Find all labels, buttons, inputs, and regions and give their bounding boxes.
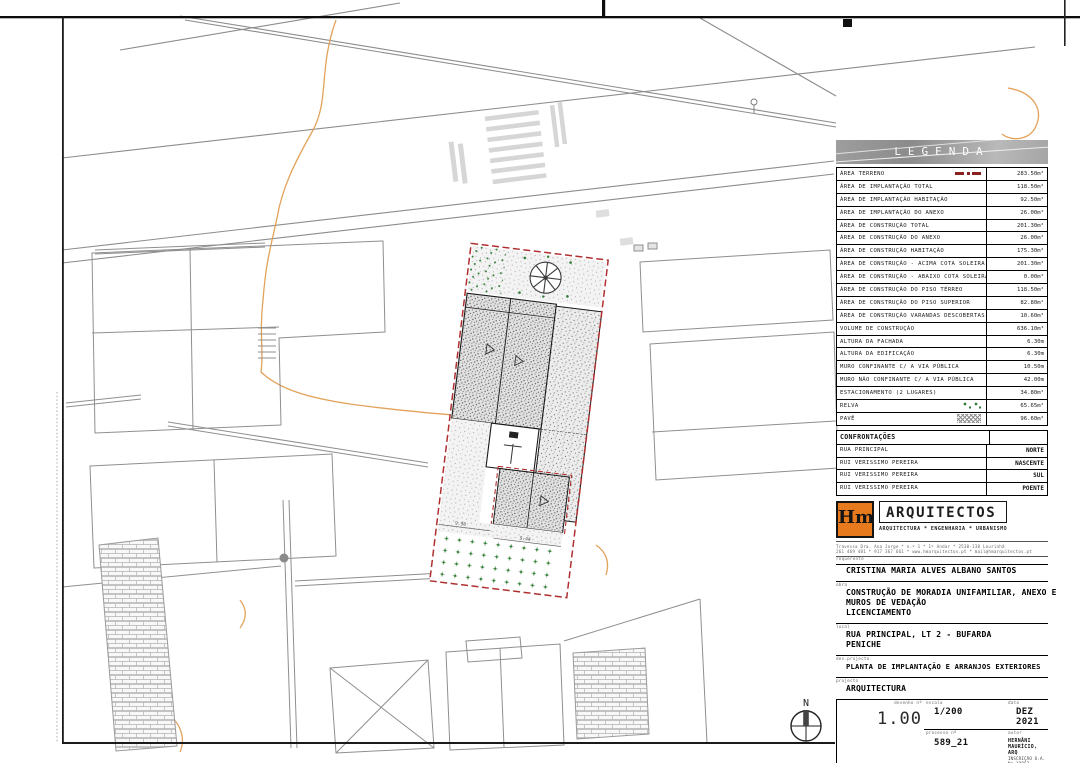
confrontacao-name: RUI VERISSIMO PEREIRA (837, 483, 986, 495)
confrontacao-row: RUI VERISSIMO PEREIRA SUL (837, 469, 1047, 482)
legend-row-labelcell: VOLUME DE CONSTRUÇÃO (837, 323, 986, 335)
legend-row-label: ALTURA DA FACHADA (840, 339, 903, 345)
requerente-value: CRISTINA MARIA ALVES ALBANO SANTOS (836, 566, 1048, 576)
desenho-numero-cell: desenho nº 1.00 (836, 699, 924, 763)
confrontacao-side: SUL (986, 470, 1047, 482)
legend-row-label: ÁREA DE CONSTRUÇÃO TOTAL (840, 223, 929, 229)
processo-label: processo nº (926, 731, 1004, 736)
data-value: DEZ 2021 (1008, 707, 1046, 727)
obra-line1: CONSTRUÇÃO DE MORADIA UNIFAMILIAR, ANEXO… (836, 588, 1048, 598)
legend-row: ÁREA DE CONSTRUÇÃO TOTAL 201.30m² (837, 219, 1047, 232)
local-section: local RUA PRINCIPAL, LT 2 - BUFARDA PENI… (836, 623, 1048, 653)
legend-row-labelcell: MURO CONFINANTE C/ A VIA PÚBLICA (837, 361, 986, 373)
legend-row-labelcell: ÁREA DE CONSTRUÇÃO - ABAIXO COTA SOLEIRA (837, 271, 986, 283)
legend-row-label: ÁREA DE IMPLANTAÇÃO DO ANEXO (840, 210, 944, 216)
legend-row: ÁREA DE CONSTRUÇÃO HABITAÇÃO 175.30m² (837, 244, 1047, 257)
legend-row-value: 0.00m² (986, 271, 1047, 283)
legend-row: MURO CONFINANTE C/ A VIA PÚBLICA 10.50m (837, 360, 1047, 373)
legend-row-value: 26.00m² (986, 207, 1047, 219)
legend-row-value: 118.50m² (986, 284, 1047, 296)
firm-logo-row: Hm ARQUITECTOS ARQUITECTURA * ENGENHARIA… (836, 501, 1048, 538)
titleblock-grid: escala 1/200 data DEZ 2021 desenho nº 1.… (836, 699, 1048, 763)
legend-row: ÁREA TERRENO 283.50m² (837, 168, 1047, 180)
processo-cell: processo nº 589_21 (924, 729, 1006, 763)
title-block-column: LEGENDA ÁREA TERRENO 283.50m² ÁREA DE IM… (836, 140, 1048, 763)
legend-row-labelcell: ÁREA DE IMPLANTAÇÃO TOTAL (837, 181, 986, 193)
north-label: N (803, 698, 809, 709)
legend-row: VOLUME DE CONSTRUÇÃO 636.10m³ (837, 322, 1047, 335)
firm-tagline: ARQUITECTURA * ENGENHARIA * URBANISMO (879, 526, 1007, 532)
legend-row: ÁREA DE IMPLANTAÇÃO TOTAL 118.50m² (837, 180, 1047, 193)
data-cell: data DEZ 2021 (1006, 699, 1048, 730)
legend-row-value: 92.50m² (986, 194, 1047, 206)
firm-block: Hm ARQUITECTOS ARQUITECTURA * ENGENHARIA… (836, 501, 1048, 562)
anexo-footprint (491, 466, 572, 535)
drawing-sheet: 9.98 9.44 N LEGENDA ÁREA TERRE (0, 0, 1080, 763)
legend-row-labelcell: ÁREA DE CONSTRUÇÃO HABITAÇÃO (837, 245, 986, 257)
requerente-section: CRISTINA MARIA ALVES ALBANO SANTOS (836, 564, 1048, 579)
autor-label: autor (1008, 731, 1046, 736)
legend-row: ESTACIONAMENTO (2 LUGARES) 34.80m² (837, 386, 1047, 399)
projecto-value: ARQUITECTURA (836, 684, 1048, 694)
firm-name-wrap: ARQUITECTOS ARQUITECTURA * ENGENHARIA * … (879, 501, 1007, 532)
legend-row-label: ÁREA DE CONSTRUÇÃO VARANDAS DESCOBERTAS (840, 313, 985, 319)
legend-row-value: 65.65m² (986, 400, 1047, 412)
legend-row: ÁREA DE CONSTRUÇÃO DO ANEXO 26.00m² (837, 231, 1047, 244)
legend-row-value: 26.00m² (986, 232, 1047, 244)
legend-row: RELVA 65.65m² (837, 399, 1047, 412)
confrontacao-name: RUI VERISSIMO PEREIRA (837, 470, 986, 482)
firm-name: ARQUITECTOS (879, 501, 1007, 523)
legend-row: ÁREA DE IMPLANTAÇÃO DO ANEXO 26.00m² (837, 206, 1047, 219)
processo-value: 589_21 (926, 738, 1004, 748)
legend-row-label: ÁREA DE CONSTRUÇÃO - ABAIXO COTA SOLEIRA (840, 274, 986, 280)
legend-row-label: ÁREA DE IMPLANTAÇÃO HABITAÇÃO (840, 197, 948, 203)
plot: 9.98 9.44 (430, 243, 608, 597)
legend-row-label: MURO NÃO CONFINANTE C/ A VIA PÚBLICA (840, 377, 974, 383)
local-line2: PENICHE (836, 640, 1048, 650)
confrontacoes-title: CONFRONTAÇÕES (837, 431, 989, 444)
legend-row-value: 96.60m² (986, 413, 1047, 425)
legend-row-label: ÁREA DE CONSTRUÇÃO DO PISO TÉRREO (840, 287, 963, 293)
escala-value: 1/200 (926, 707, 1004, 717)
stair-symbol (258, 328, 276, 358)
crosswalk (445, 102, 571, 189)
legend-row-labelcell: PAVÊ (837, 413, 986, 425)
confrontacao-row: RUI VERISSIMO PEREIRA POENTE (837, 482, 1047, 495)
firm-address: Travessa Dra. Ana Jorge * n.º 1 * 1º And… (836, 541, 1048, 557)
legend-row-label: ÁREA DE IMPLANTAÇÃO TOTAL (840, 184, 933, 190)
requerente-label: requerente (836, 557, 1048, 562)
confrontacao-side: POENTE (986, 483, 1047, 495)
escala-label: escala (926, 701, 1004, 706)
street-symbol (751, 99, 757, 113)
left-buildings (66, 241, 428, 568)
legend-table: ÁREA TERRENO 283.50m² ÁREA DE IMPLANTAÇÃ… (836, 167, 1048, 426)
legend-row-symbol (955, 172, 981, 175)
confrontacao-side: NASCENTE (986, 458, 1047, 470)
legend-row-value: 175.30m² (986, 245, 1047, 257)
confrontacao-side: NORTE (986, 445, 1047, 457)
legend-row-value: 118.50m² (986, 181, 1047, 193)
confrontacoes-table: CONFRONTAÇÕES RUA PRINCIPAL NORTE RUI VE… (836, 430, 1048, 496)
desenho-value: PLANTA DE IMPLANTAÇÃO E ARRANJOS EXTERIO… (836, 662, 1048, 672)
legend-row-labelcell: ÁREA DE IMPLANTAÇÃO HABITAÇÃO (837, 194, 986, 206)
legend-row-label: MURO CONFINANTE C/ A VIA PÚBLICA (840, 364, 959, 370)
legend-row-labelcell: RELVA (837, 400, 986, 412)
legend-row-value: 201.30m² (986, 220, 1047, 232)
legend-row-label: PAVÊ (840, 416, 855, 422)
pavement-marks (596, 209, 634, 246)
legend-row: ÁREA DE CONSTRUÇÃO - ABAIXO COTA SOLEIRA… (837, 270, 1047, 283)
confrontacoes-header: CONFRONTAÇÕES (837, 431, 1047, 445)
confrontacoes-rows: RUA PRINCIPAL NORTE RUI VERISSIMO PEREIR… (837, 445, 1047, 495)
obra-line3: LICENCIAMENTO (836, 608, 1048, 618)
firm-address-line2: 261 469 481 * 917 367 661 * www.hmarquit… (836, 549, 1048, 554)
legend-row-label: ÁREA DE CONSTRUÇÃO DO ANEXO (840, 235, 940, 241)
local-line1: RUA PRINCIPAL, LT 2 - BUFARDA (836, 630, 1048, 640)
legend-row-symbol (957, 414, 981, 423)
legend-row-labelcell: ALTURA DA FACHADA (837, 336, 986, 348)
autor-line1: HERNÂNI MAURÍCIO, ARQ (1008, 738, 1046, 756)
data-label: data (1008, 701, 1046, 706)
legend-row-labelcell: ÁREA DE CONSTRUÇÃO VARANDAS DESCOBERTAS (837, 310, 986, 322)
confrontacao-row: RUI VERISSIMO PEREIRA NASCENTE (837, 457, 1047, 470)
legend-row-label: ÁREA DE CONSTRUÇÃO - ACIMA COTA SOLEIRA (840, 261, 985, 267)
north-arrow: N (791, 698, 821, 741)
legend-row: MURO NÃO CONFINANTE C/ A VIA PÚBLICA 42.… (837, 373, 1047, 386)
legend-row-labelcell: ÁREA DE IMPLANTAÇÃO DO ANEXO (837, 207, 986, 219)
firm-logo-icon: Hm (836, 501, 874, 538)
escala-cell: escala 1/200 (924, 699, 1006, 730)
legend-row-labelcell: ESTACIONAMENTO (2 LUGARES) (837, 387, 986, 399)
legend-row-labelcell: ÁREA DE CONSTRUÇÃO TOTAL (837, 220, 986, 232)
legend-row: PAVÊ 96.60m² (837, 412, 1047, 425)
legend-header: LEGENDA (836, 140, 1048, 164)
legend-row-value: 42.00m (986, 374, 1047, 386)
legend-row-symbol (961, 402, 981, 409)
legend-row-value: 34.80m² (986, 387, 1047, 399)
legend-row-label: ÁREA TERRENO (840, 171, 885, 177)
desenho-numero-label: desenho nº (894, 701, 922, 706)
legend-row: ÁREA DE CONSTRUÇÃO - ACIMA COTA SOLEIRA … (837, 257, 1047, 270)
legend-row-value: 201.30m² (986, 258, 1047, 270)
confrontacao-name: RUI VERISSIMO PEREIRA (837, 458, 986, 470)
desenho-numero-value: 1.00 (877, 709, 922, 729)
legend-row-value: 10.60m² (986, 310, 1047, 322)
patio (486, 423, 539, 473)
legend-row: ALTURA DA EDIFICAÇÃO 6.30m (837, 347, 1047, 360)
legend-row-labelcell: ALTURA DA EDIFICAÇÃO (837, 348, 986, 360)
legend-row-value: 6.30m (986, 336, 1047, 348)
legend-row-label: ALTURA DA EDIFICAÇÃO (840, 351, 914, 357)
legend-row-value: 6.30m (986, 348, 1047, 360)
legend-row-labelcell: MURO NÃO CONFINANTE C/ A VIA PÚBLICA (837, 374, 986, 386)
legend-row-label: ÁREA DE CONSTRUÇÃO HABITAÇÃO (840, 248, 944, 254)
confrontacao-row: RUA PRINCIPAL NORTE (837, 445, 1047, 457)
legend-row-label: ESTACIONAMENTO (2 LUGARES) (840, 390, 937, 396)
legend-row-value: 10.50m (986, 361, 1047, 373)
legend-row-label: VOLUME DE CONSTRUÇÃO (840, 326, 914, 332)
legend-row-label: RELVA (840, 403, 859, 409)
legend-row: ÁREA DE IMPLANTAÇÃO HABITAÇÃO 92.50m² (837, 193, 1047, 206)
legend-row-value: 283.50m² (986, 168, 1047, 180)
legend-row: ÁREA DE CONSTRUÇÃO DO PISO SUPERIOR 82.8… (837, 296, 1047, 309)
legend-row-label: ÁREA DE CONSTRUÇÃO DO PISO SUPERIOR (840, 300, 970, 306)
autor-cell: autor HERNÂNI MAURÍCIO, ARQ INSCRIÇÃO O.… (1006, 729, 1048, 763)
legend-row: ÁREA DE CONSTRUÇÃO VARANDAS DESCOBERTAS … (837, 309, 1047, 322)
legend-row-labelcell: ÁREA DE CONSTRUÇÃO DO PISO SUPERIOR (837, 297, 986, 309)
obra-section: obra CONSTRUÇÃO DE MORADIA UNIFAMILIAR, … (836, 581, 1048, 621)
legend-row-labelcell: ÁREA TERRENO (837, 168, 986, 180)
legend-row-labelcell: ÁREA DE CONSTRUÇÃO - ACIMA COTA SOLEIRA (837, 258, 986, 270)
legend-row-labelcell: ÁREA DE CONSTRUÇÃO DO PISO TÉRREO (837, 284, 986, 296)
legend-row: ÁREA DE CONSTRUÇÃO DO PISO TÉRREO 118.50… (837, 283, 1047, 296)
legend-row-value: 636.10m³ (986, 323, 1047, 335)
confrontacao-name: RUA PRINCIPAL (837, 445, 986, 457)
projecto-section: projecto ARQUITECTURA (836, 677, 1048, 697)
legend-row-labelcell: ÁREA DE CONSTRUÇÃO DO ANEXO (837, 232, 986, 244)
desenho-section: des.projecto PLANTA DE IMPLANTAÇÃO E ARR… (836, 655, 1048, 675)
legend-row: ALTURA DA FACHADA 6.30m (837, 335, 1047, 348)
autor-line2: INSCRIÇÃO O.A. Nº 19862 (1008, 756, 1046, 763)
obra-line2: MUROS DE VEDAÇÃO (836, 598, 1048, 608)
confrontacoes-header-spacer (989, 431, 1047, 444)
legend-row-value: 82.80m² (986, 297, 1047, 309)
right-buildings (634, 243, 838, 480)
